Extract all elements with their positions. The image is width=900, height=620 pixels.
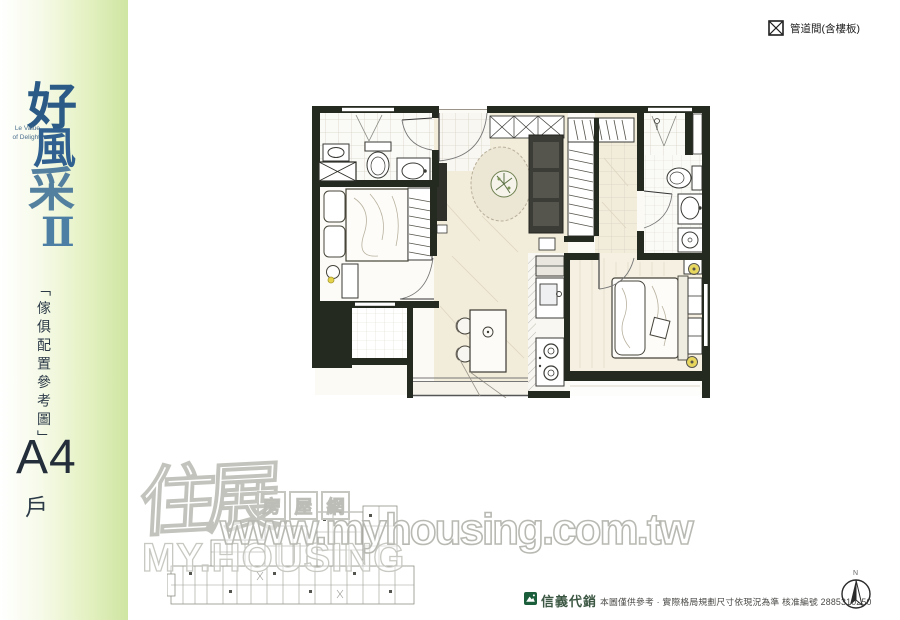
site-key-plan bbox=[167, 502, 420, 614]
floor-plan bbox=[312, 106, 710, 398]
north-arrow: N bbox=[838, 570, 874, 616]
duct-box bbox=[319, 162, 356, 181]
brand-tagline-line1: Le Value bbox=[0, 124, 40, 133]
agency-name: 信義代銷 bbox=[541, 591, 597, 610]
unit-code: A4 bbox=[16, 432, 77, 485]
compass-icon bbox=[839, 577, 873, 611]
vertical-caption: 「傢俱配置參考圖」 bbox=[33, 282, 53, 449]
crossed-box-icon bbox=[768, 20, 784, 36]
unit-suffix: 戶 bbox=[25, 488, 48, 522]
agency-logo-icon bbox=[524, 592, 537, 605]
legend-duct: 管道間(含樓板) bbox=[768, 20, 860, 36]
brand-tagline-line2: of Delight bbox=[0, 133, 40, 142]
brand-tagline: Le Value of Delight bbox=[0, 124, 40, 143]
disclaimer-text: 本圖僅供參考 · 實際格局規劃尺寸依現況為準 核准編號 2885310250 bbox=[600, 595, 872, 608]
north-label: N bbox=[838, 570, 874, 577]
brand-numeral: Ⅱ bbox=[41, 213, 75, 253]
page: 好 風 采 Ⅱ Le Value of Delight 「傢俱配置參考圖」 A4… bbox=[0, 0, 900, 620]
brand-character-3: 采 bbox=[28, 167, 75, 214]
legend-duct-label: 管道間(含樓板) bbox=[790, 21, 860, 36]
